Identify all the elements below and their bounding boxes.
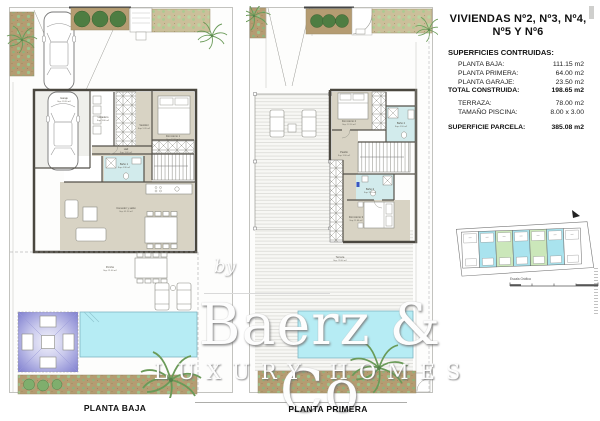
gate [416, 373, 430, 392]
pool [80, 312, 197, 357]
garden-strip-top [152, 9, 210, 32]
svg-text:Sup: 21.00 m2: Sup: 21.00 m2 [103, 270, 117, 272]
bed2 [338, 93, 368, 119]
trellis-cells [330, 160, 343, 242]
vertical-caption-illegible [594, 268, 598, 314]
svg-text:Sup: 12.10 m2: Sup: 12.10 m2 [342, 124, 356, 126]
room-label: Garaje [60, 96, 68, 100]
room-label: Pasillo [340, 150, 348, 154]
entry-steps [130, 8, 152, 32]
svg-text:Sup: 78.00 m2: Sup: 78.00 m2 [333, 260, 347, 262]
spec-row: TAMAÑO PISCINA:8.00 x 3.00 [445, 109, 591, 118]
room-label: Comedor y salón [116, 206, 136, 210]
caption-planta-primera: PLANTA PRIMERA [255, 404, 401, 414]
room-label: Dormitorio 1 [166, 134, 181, 138]
room-label: Terraza [336, 255, 345, 259]
room-label: Hall [124, 147, 129, 151]
sheet-title-line1: VIVIENDAS Nº2, Nº3, Nº4, [445, 13, 591, 26]
caption-planta-baja: PLANTA BAJA [55, 403, 175, 413]
room-label: Dormitorio 3 [349, 215, 364, 219]
bed1 [158, 96, 190, 134]
north-arrow-icon [572, 210, 580, 218]
room-label: Baño 3 [366, 187, 375, 191]
spec-row: PLANTA PRIMERA:64.00 m2 [445, 70, 591, 79]
specs-heading: SUPERFICIES CONTRUIDAS: [448, 48, 591, 57]
pergola [18, 312, 78, 372]
svg-text:Sup: 4.10 m2: Sup: 4.10 m2 [395, 126, 408, 128]
floor-plan-first: Dormitorio 2 Sup: 12.10 m2 Baño 2 Sup: 4… [246, 6, 438, 398]
wardrobe-cells [152, 140, 194, 153]
edge-mark [589, 6, 594, 19]
room-label: Lavadero [98, 115, 109, 119]
spec-row-parcel: SUPERFICIE PARCELA:385.08 m2 [445, 124, 591, 133]
car-driveway [42, 12, 75, 90]
svg-text:Sup: 3.70 m2: Sup: 3.70 m2 [364, 192, 377, 194]
svg-text:Sup: 5.20 m2: Sup: 5.20 m2 [138, 128, 151, 130]
kitchen-counter [146, 184, 192, 194]
svg-text:Sup: 41.50 m2: Sup: 41.50 m2 [119, 211, 133, 213]
closet-cells [372, 92, 386, 130]
watermark-rule [204, 293, 330, 294]
sheet-title-line2: Nº5 Y Nº6 [445, 26, 591, 39]
deck-terrace [255, 94, 330, 230]
room-label: Baño 1 [120, 162, 129, 166]
spec-row: TERRAZA:78.00 m2 [445, 100, 591, 109]
key-plan: Escala Gráfica [452, 200, 600, 292]
bushes [24, 379, 63, 391]
info-panel: VIVIENDAS Nº2, Nº3, Nº4, Nº5 Y Nº6 SUPER… [445, 13, 591, 133]
dining-table [145, 212, 177, 249]
room-label: Vestidor [139, 123, 149, 127]
svg-text:Sup: 11.60 m2: Sup: 11.60 m2 [349, 220, 363, 222]
room-label: Baño 2 [397, 121, 406, 125]
scale-bar-label: Escala Gráfica [510, 277, 531, 281]
plan-sheet: Garaje Sup: 23.50 m2 Lavadero Sup: 3.80 … [0, 0, 600, 421]
svg-text:Sup: 3.60 m2: Sup: 3.60 m2 [120, 152, 133, 154]
svg-text:Sup: 4.30 m2: Sup: 4.30 m2 [118, 167, 131, 169]
svg-text:Sup: 23.50 m2: Sup: 23.50 m2 [57, 101, 71, 103]
pool [298, 311, 413, 358]
spec-row: PLANTA GARAJE:23.50 m2 [445, 79, 591, 88]
footer-divider [195, 402, 407, 403]
floor-plan-ground: Garaje Sup: 23.50 m2 Lavadero Sup: 3.80 … [6, 6, 236, 398]
car-garage [46, 92, 79, 170]
room-label: Dormitorio 2 [342, 119, 357, 123]
room-label: Porche [106, 265, 115, 269]
spec-row-total: TOTAL CONSTRUIDA:198.65 m2 [445, 87, 591, 96]
round-trees [74, 11, 126, 27]
stairs [152, 154, 194, 180]
svg-text:Sup: 3.80 m2: Sup: 3.80 m2 [97, 120, 110, 122]
svg-text:Sup: 3.90 m2: Sup: 3.90 m2 [338, 155, 351, 157]
scale-bar [510, 283, 598, 287]
spec-row: PLANTA BAJA:111.15 m2 [445, 61, 591, 70]
round-trees [311, 15, 349, 28]
svg-text:Sup: 12.40 m2: Sup: 12.40 m2 [166, 139, 180, 141]
